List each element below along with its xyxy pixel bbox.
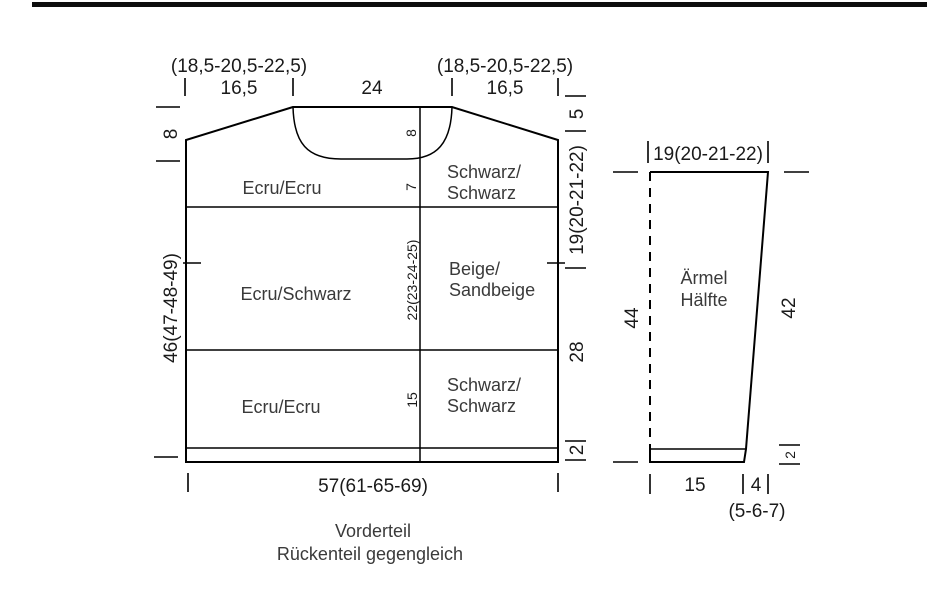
sleeve-length-left: 44: [622, 307, 643, 329]
front-piece: (18,5-20,5-22,5) 16,5 24 (18,5-20,5-22,5…: [154, 56, 588, 564]
front-right-rib-height: 2: [567, 445, 588, 456]
front-neck-width: 24: [361, 78, 383, 99]
front-caption-line1: Vorderteil: [335, 521, 411, 541]
region-mid-right-line1: Beige/: [449, 259, 500, 279]
front-neckline: [293, 107, 452, 159]
front-neck-depth: 8: [403, 129, 419, 137]
region-mid-left: Ecru/Schwarz: [240, 284, 351, 304]
region-mid-right-line2: Sandbeige: [449, 280, 535, 300]
sleeve-name-line1: Ärmel: [680, 268, 727, 288]
pattern-schematic: { "front": { "size_left": "(18,5-20,5-22…: [0, 0, 927, 603]
region-top-right-line1: Schwarz/: [447, 162, 521, 182]
sleeve-top-offset: 4: [751, 475, 762, 496]
front-size-label-left: (18,5-20,5-22,5): [171, 56, 307, 77]
front-right-side-length: 28: [567, 341, 588, 362]
front-right-shoulder-drop: 5: [567, 109, 588, 120]
front-shoulder-width-right: 16,5: [487, 78, 524, 99]
sleeve-piece: 19(20-21-22) Ärmel Hälfte 44 42 2 15 4 (…: [613, 141, 809, 522]
schematic-canvas: (18,5-20,5-22,5) 16,5 24 (18,5-20,5-22,5…: [0, 0, 927, 603]
region-low-right-line1: Schwarz/: [447, 375, 521, 395]
region-top-right-line2: Schwarz: [447, 183, 516, 203]
front-caption-line2: Rückenteil gegengleich: [277, 544, 463, 564]
region-low-left: Ecru/Ecru: [241, 397, 320, 417]
sleeve-length-right: 42: [779, 297, 800, 318]
front-size-label-right: (18,5-20,5-22,5): [437, 56, 573, 77]
sleeve-top-offset-sizes: (5-6-7): [728, 501, 785, 522]
front-bottom-width: 57(61-65-69): [318, 476, 428, 497]
front-shoulder-width-left: 16,5: [221, 78, 258, 99]
front-right-armhole-depth: 19(20-21-22): [567, 145, 588, 255]
front-lower-height: 15: [404, 392, 420, 408]
front-below-neck: 7: [403, 183, 419, 191]
region-top-left: Ecru/Ecru: [242, 178, 321, 198]
front-left-shoulder-drop: 8: [161, 129, 182, 140]
sleeve-bottom-width: 15: [684, 475, 705, 496]
top-rule: [32, 2, 927, 7]
sleeve-rib-height: 2: [782, 451, 798, 459]
sleeve-name-line2: Hälfte: [680, 290, 727, 310]
sleeve-top-width: 19(20-21-22): [653, 144, 763, 165]
front-left-body-length: 46(47-48-49): [161, 253, 182, 363]
front-mid-height: 22(23-24-25): [404, 240, 420, 321]
region-low-right-line2: Schwarz: [447, 396, 516, 416]
sleeve-outline: [650, 172, 768, 462]
